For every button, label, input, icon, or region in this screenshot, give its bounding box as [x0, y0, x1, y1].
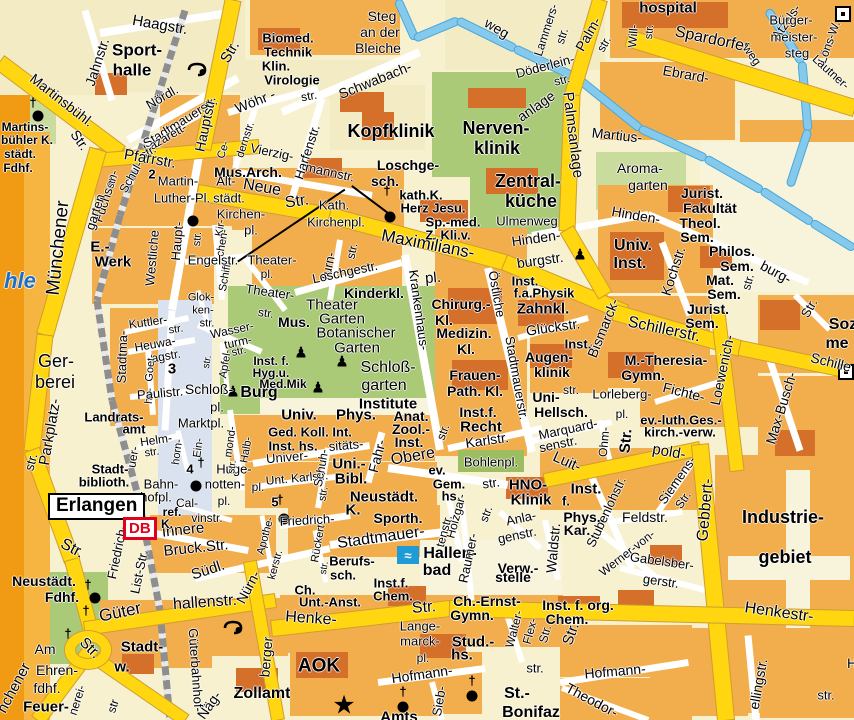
map-label: M.-Theresia- — [625, 353, 707, 367]
map-label: Technik — [264, 46, 312, 59]
map-label: Werk — [95, 255, 131, 270]
map-label: Bürger- — [769, 14, 812, 27]
map-label: str. — [553, 72, 572, 88]
map-label: Industrie- — [742, 508, 824, 526]
map-label: Feuer- — [23, 700, 69, 715]
star-icon: ★ — [332, 690, 355, 720]
map-label: str. — [257, 306, 275, 320]
map-label: Waldstr. — [544, 522, 562, 573]
map-label: str. — [144, 447, 160, 460]
map-label: Ohm- — [597, 427, 612, 458]
map-label: pl. — [218, 495, 231, 507]
map-label: pl. — [616, 408, 629, 420]
map-label: 2 — [148, 168, 155, 181]
churchdot-icon — [467, 691, 478, 702]
map-label: List-Str. — [128, 549, 150, 595]
map-label: Haupt- — [169, 221, 185, 261]
map-label: 3 — [168, 362, 176, 377]
cross-icon: † — [64, 625, 71, 643]
map-label: Lorleberg- — [592, 388, 651, 401]
map-label: garten — [628, 178, 668, 192]
city-block — [650, 628, 748, 716]
map-label: Univer- — [266, 449, 309, 466]
map-label: Stadt- — [121, 640, 164, 655]
map-label: pl. — [210, 401, 224, 414]
map-label: 4 — [186, 463, 193, 476]
map-label: vinstr. — [191, 512, 222, 524]
map-label: sch. — [371, 174, 399, 188]
map-label: klinik — [534, 365, 570, 379]
map-label: K. — [346, 503, 361, 518]
map-label: Frauen- — [449, 368, 500, 382]
map-label: me — [825, 336, 848, 352]
map-label: Mus. — [278, 315, 310, 329]
cross-icon: † — [399, 683, 406, 701]
map-label: Str. — [617, 428, 634, 453]
map-label: Fdhf. — [45, 590, 79, 604]
map-label: pl. — [261, 268, 274, 280]
map-label: Augen- — [525, 350, 573, 364]
map-label: Kirchenpl. — [307, 216, 365, 229]
map-label: Friedrich- — [279, 512, 335, 528]
map-label: Kirchen- — [217, 208, 265, 221]
map-label: E.- — [90, 240, 109, 255]
map-label: Soz — [829, 317, 854, 333]
map-label: Ulmenweg — [496, 215, 557, 228]
map-label: Nerven- — [462, 119, 529, 137]
map-label: str. — [482, 475, 501, 490]
map-label: berger — [257, 636, 274, 678]
map-label: garten — [361, 378, 406, 394]
map-label: Phys. — [336, 408, 376, 423]
map-label: Martius- — [591, 125, 643, 144]
map-label: Stadtma- — [115, 330, 130, 383]
map-label: amt — [122, 423, 145, 436]
map-label: Steg — [368, 9, 397, 23]
posthorn-icon — [223, 620, 243, 640]
map-label: Theater- — [247, 254, 296, 267]
map-label: Univ. — [281, 408, 317, 423]
map-label: Lautner- — [810, 53, 851, 92]
map-label: str. — [192, 231, 204, 247]
map-label: Aroma- — [617, 161, 663, 175]
map-label: w. — [114, 660, 129, 675]
map-label: Jurist. — [687, 302, 729, 316]
map-label: gerstr. — [642, 572, 680, 590]
map-label: Str. — [411, 599, 436, 617]
map-label: Feldstr. — [622, 510, 668, 524]
map-label: pl. — [252, 481, 265, 493]
cross-icon: † — [82, 602, 89, 620]
map-label: sch. — [330, 569, 356, 582]
map-label: Gymn. — [450, 608, 494, 622]
map-label: str. — [817, 689, 834, 702]
map-label: f.a.Physik — [514, 287, 575, 300]
map-label: Zahnkl. — [517, 302, 570, 317]
map-label: Garten — [334, 341, 380, 356]
map-label: Sem. — [707, 287, 740, 301]
map-label: str. — [227, 460, 239, 475]
map-label: Neustädt. — [12, 574, 76, 588]
map-label: Mat. — [706, 273, 734, 287]
map-label: Bohlenpl. — [464, 456, 518, 469]
map-label: Sport- — [112, 42, 162, 59]
map-label: H — [847, 656, 854, 670]
map-label: Str. — [284, 192, 310, 211]
cross-icon: † — [468, 672, 475, 690]
map-label: Zollamt — [234, 686, 291, 702]
city-map[interactable]: Haagstr.Sport-halleJahnstr.Martinsbühl.S… — [0, 0, 854, 720]
map-label: str. — [478, 504, 495, 523]
map-label: Vierzig- — [249, 141, 295, 163]
map-label: Med.Mik — [259, 378, 306, 390]
map-label: Botanischer — [316, 326, 395, 341]
building-block — [760, 300, 800, 330]
map-label: städt. — [4, 148, 36, 160]
map-label: pl. — [244, 224, 258, 237]
map-label: bad — [423, 563, 451, 579]
map-label: str. — [563, 384, 579, 396]
map-label: str. — [202, 355, 214, 370]
cross-icon: † — [29, 94, 36, 112]
map-label: bühler K. — [1, 134, 53, 146]
map-label: Schloß- — [185, 382, 233, 396]
churchdot-icon — [90, 593, 101, 604]
map-symbol-icon — [835, 6, 851, 22]
map-label: Klinik — [511, 493, 552, 508]
map-label: str — [105, 698, 121, 714]
map-label: St.- — [504, 686, 530, 702]
map-label: str. — [300, 89, 318, 104]
map-label: Recht — [460, 420, 502, 435]
map-label: städt. — [213, 192, 245, 205]
swimming-pool-icon: ≈ — [397, 546, 419, 564]
map-label: Lange- — [400, 620, 440, 633]
map-label: Martins- — [2, 121, 49, 133]
map-label: uer- — [125, 445, 141, 468]
map-label: Luther-Pl. — [154, 192, 210, 205]
map-label: pl. — [417, 652, 430, 664]
city-name-label: Erlangen — [48, 493, 145, 520]
map-label: Inst.f. — [459, 405, 496, 419]
map-label: Virologie — [264, 74, 319, 87]
map-label: Sporth. — [374, 511, 423, 525]
map-label: Theol. — [679, 216, 720, 230]
map-label: Am — [35, 642, 56, 656]
map-label: halle — [113, 62, 152, 79]
map-label: gebiet — [758, 548, 811, 566]
city-block — [760, 628, 854, 718]
map-screenshot: Haagstr.Sport-halleJahnstr.Martinsbühl.S… — [0, 0, 854, 720]
map-label: Marktpl. — [178, 417, 224, 430]
map-label: Engelstr. — [188, 254, 239, 267]
map-label: Chirurg.- — [431, 297, 490, 311]
map-label: marck- — [400, 635, 440, 648]
map-label: Bibl. — [335, 472, 368, 487]
map-label: Bleiche — [355, 41, 401, 55]
map-label: berei — [35, 373, 75, 391]
map-label: Klin. — [262, 60, 290, 73]
map-label: Zentral- — [495, 172, 561, 190]
map-label: Inst. — [614, 256, 647, 272]
statue-icon: ♟ — [311, 379, 324, 398]
map-label: Uni.- — [332, 457, 365, 472]
map-label: Str. — [58, 536, 87, 561]
map-label: HNO- — [509, 478, 547, 493]
map-label: Bonifaz — [502, 705, 560, 720]
map-label: Gymn. — [621, 368, 665, 382]
map-label: Kath. — [319, 199, 349, 212]
map-label: stelle — [495, 570, 531, 584]
map-label: Path. Kl. — [447, 384, 503, 398]
cross-icon: † — [84, 576, 91, 594]
map-label: Kl. — [457, 342, 475, 356]
map-label: Ged. Koll. Int. — [268, 426, 352, 439]
churchdot-icon — [385, 212, 396, 223]
map-label: Paulistr. — [136, 385, 183, 402]
map-label: Amts — [380, 710, 418, 720]
statue-icon: ♟ — [573, 246, 586, 265]
map-label: an der — [360, 25, 400, 39]
map-label: pl. — [424, 270, 441, 286]
map-label: ken- — [192, 306, 213, 317]
map-label: Chem. — [373, 590, 413, 603]
map-label: Ehren- — [36, 663, 78, 677]
db-station-logo: DB — [123, 517, 157, 540]
map-label: str. — [344, 242, 359, 260]
churchdot-icon — [191, 481, 202, 492]
map-label: 5 — [271, 496, 278, 509]
map-label: str. — [644, 24, 656, 40]
map-label: Ger- — [38, 352, 74, 370]
map-label: Martin- — [158, 175, 198, 188]
map-label: Uni- — [532, 390, 559, 404]
map-label: biblioth. — [79, 476, 130, 489]
map-label: Berufs- — [329, 555, 375, 568]
map-label: f. — [562, 495, 570, 508]
map-label: notten- — [205, 478, 245, 491]
map-label: Schloß- — [360, 360, 415, 376]
map-label: Sem. — [720, 259, 753, 273]
map-label: Unt.-Anst. — [299, 596, 361, 609]
map-label: Medizin. — [436, 326, 491, 340]
map-label: ev. — [428, 464, 445, 477]
map-label: Fakultät — [683, 201, 737, 215]
map-label: Fdhf. — [3, 162, 32, 174]
map-label: Gabelsber- — [629, 550, 694, 572]
map-label: str. — [740, 273, 756, 292]
map-label: Sem. — [680, 230, 713, 244]
map-label: Glok- — [188, 293, 214, 304]
map-label: Kopfklinik — [347, 122, 434, 140]
map-label: Loschge- — [377, 158, 439, 172]
map-label: str. — [526, 662, 543, 675]
map-label: Inst. f. org. — [542, 598, 614, 612]
map-label: Univ. — [614, 238, 652, 254]
map-label: hle — [4, 270, 36, 292]
map-label: hospital — [639, 1, 697, 16]
statue-icon: ♟ — [294, 344, 307, 363]
map-label: Biomed. — [262, 32, 313, 45]
posthorn-icon — [187, 62, 207, 82]
map-label: Ch.-Ernst- — [453, 594, 521, 608]
map-label: Herz Jesu. — [400, 202, 465, 215]
map-label: steg — [785, 47, 810, 60]
map-label: Will- — [626, 24, 640, 48]
map-label: hs. — [451, 648, 473, 663]
map-label: AOK — [298, 657, 340, 676]
map-label: Chem. — [546, 612, 589, 626]
map-label: K. — [161, 518, 173, 530]
map-label: Inst. — [571, 482, 602, 497]
map-label: sitäts- — [328, 437, 364, 453]
map-label: Alt- — [216, 175, 236, 188]
map-label: kirch.-verw. — [644, 426, 716, 439]
map-label: küche — [505, 192, 557, 210]
map-label: Hellsch. — [534, 405, 588, 419]
map-label: fdhf. — [33, 681, 60, 695]
map-label: Philos. — [709, 244, 755, 258]
map-label: Jurist. — [681, 186, 723, 200]
map-label: klinik — [474, 139, 520, 157]
churchdot-icon — [188, 216, 199, 227]
building-block — [468, 88, 526, 108]
map-label: meister- — [771, 31, 818, 44]
